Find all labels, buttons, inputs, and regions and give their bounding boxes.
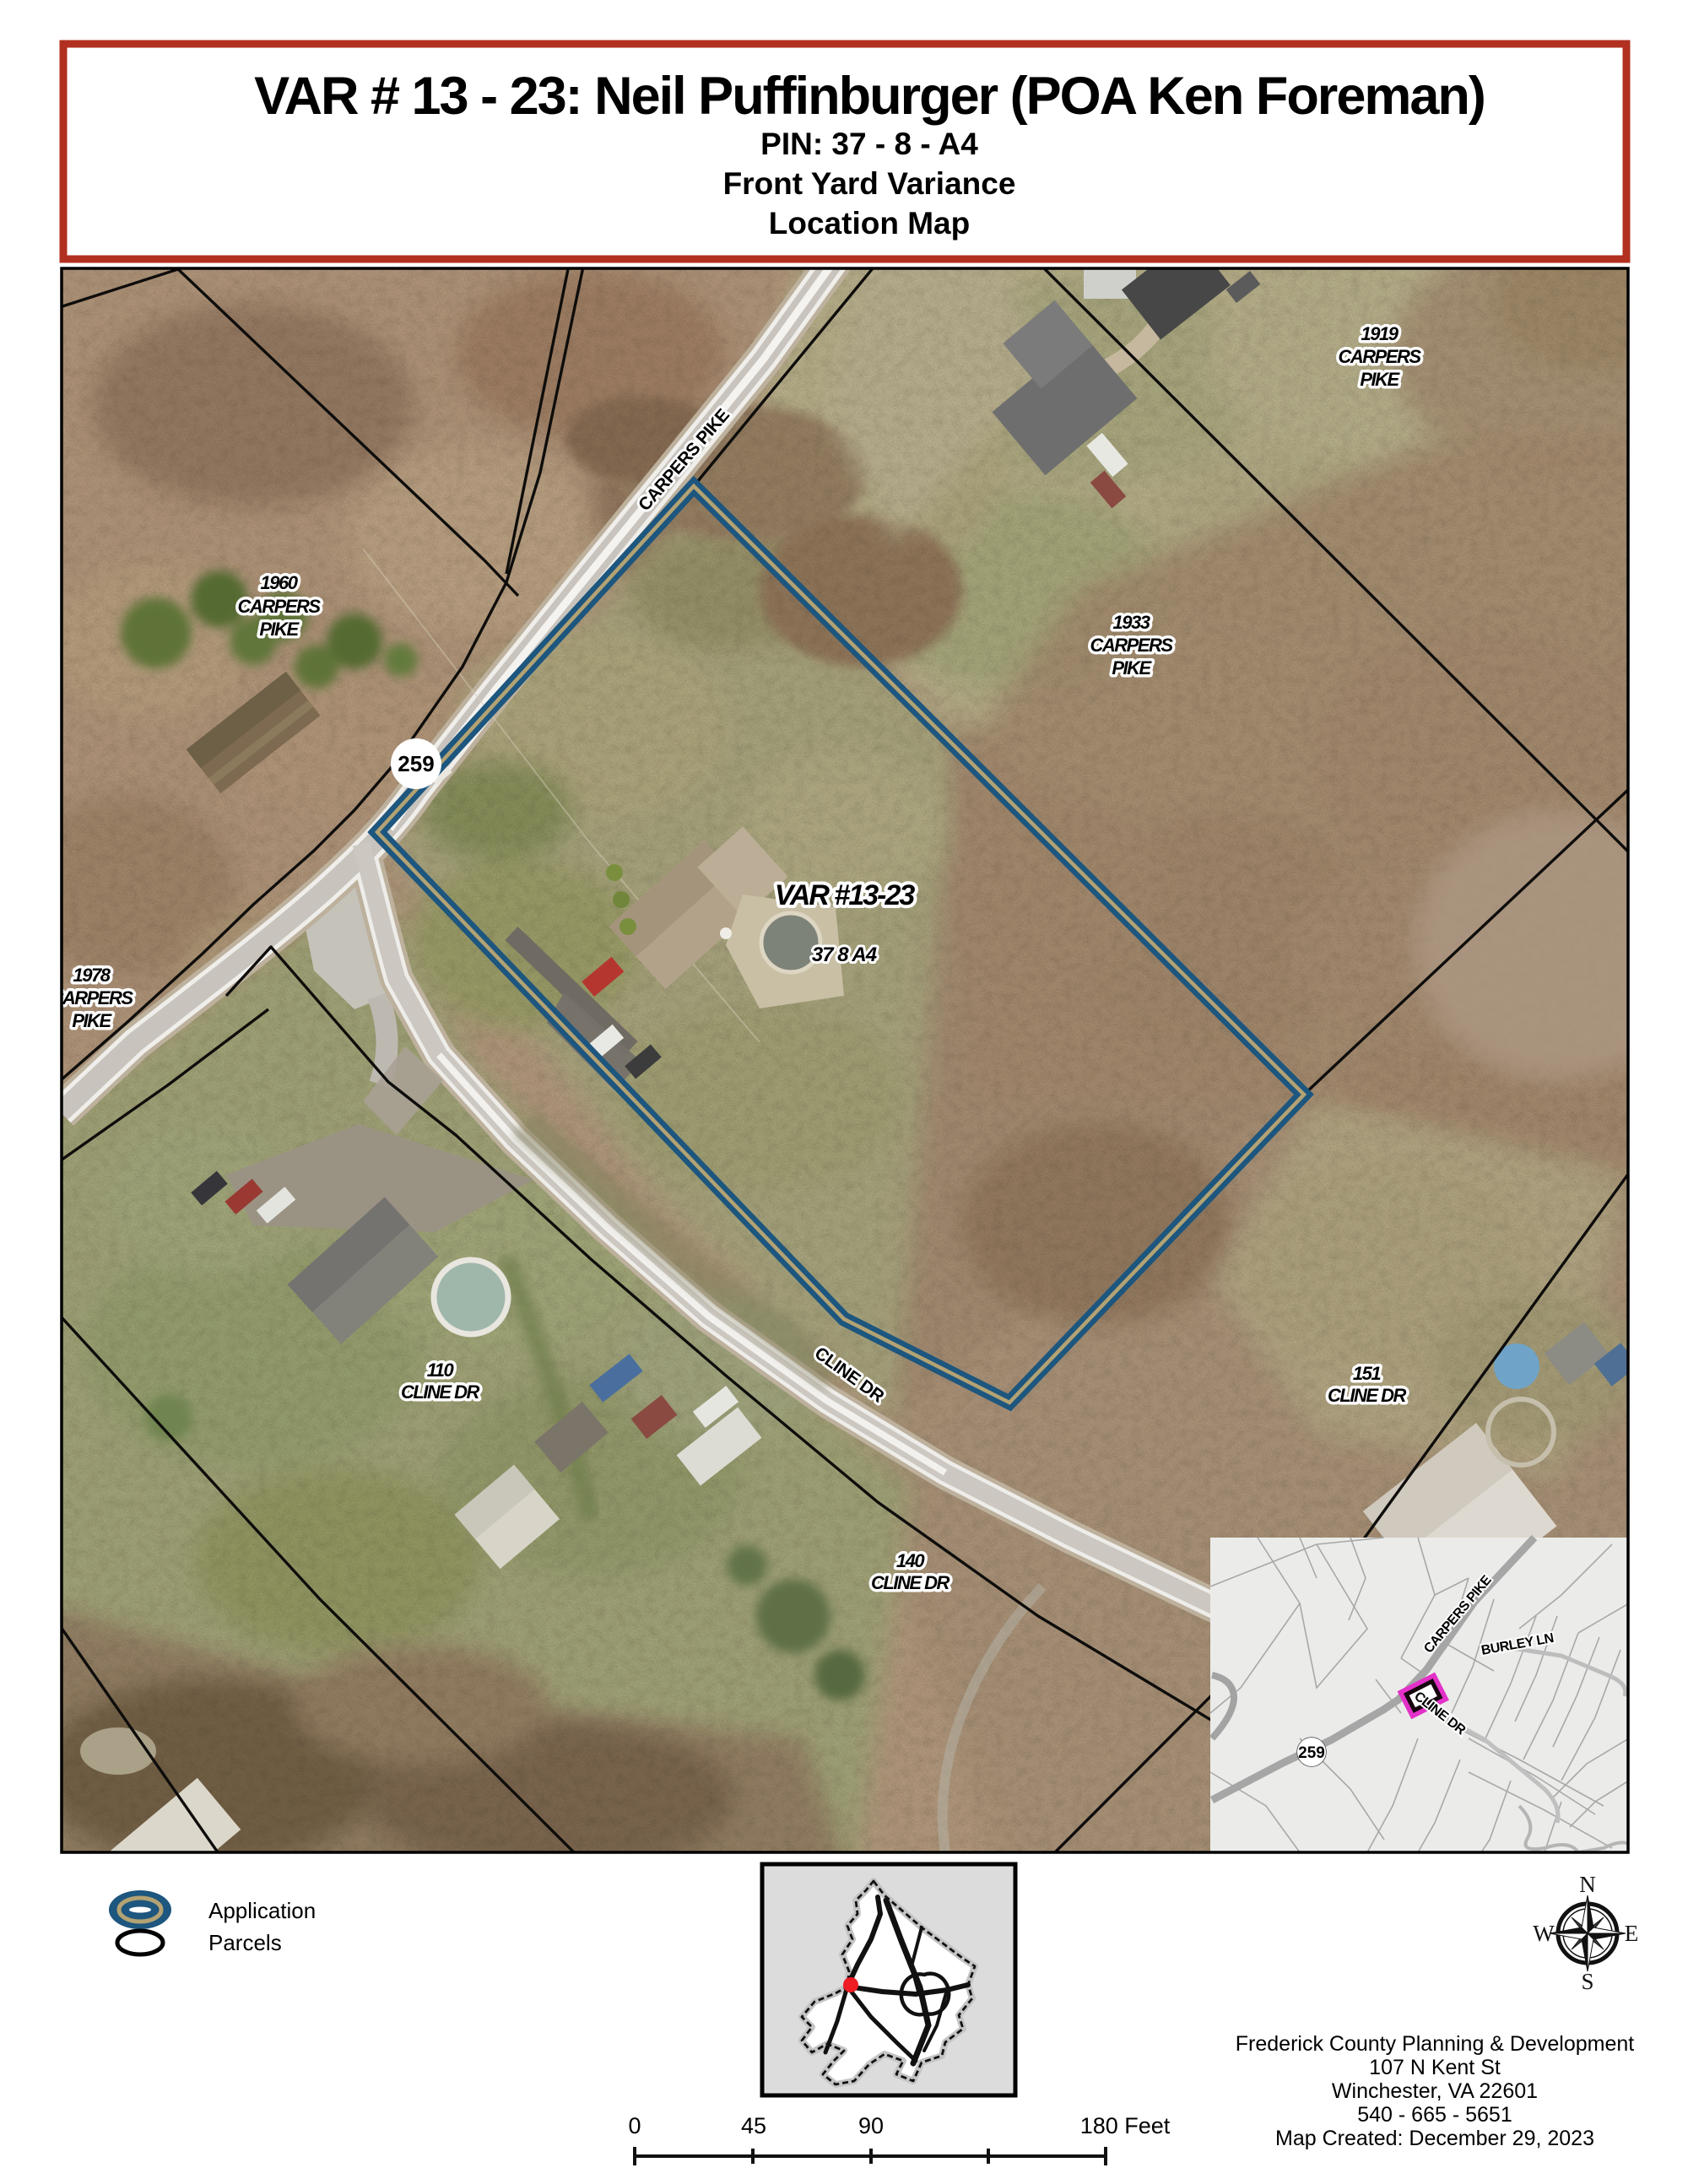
svg-text:W: W	[1533, 1921, 1555, 1946]
svg-text:CARPERS: CARPERS	[1338, 346, 1421, 367]
svg-text:140: 140	[896, 1550, 925, 1571]
svg-text:151: 151	[1353, 1363, 1381, 1384]
svg-text:0: 0	[628, 2113, 641, 2138]
svg-text:Front Yard Variance: Front Yard Variance	[723, 166, 1016, 201]
svg-text:Location Map: Location Map	[769, 206, 970, 241]
svg-text:N: N	[1579, 1872, 1596, 1897]
svg-text:PIN: 37 - 8 - A4: PIN: 37 - 8 - A4	[760, 127, 978, 161]
svg-text:CARPERS: CARPERS	[237, 596, 321, 617]
svg-text:Frederick County Planning & De: Frederick County Planning & Development	[1236, 2032, 1635, 2056]
svg-text:E: E	[1625, 1921, 1639, 1946]
svg-text:PIKE: PIKE	[1112, 657, 1152, 678]
svg-text:PIKE: PIKE	[259, 619, 300, 640]
svg-text:PIKE: PIKE	[72, 1010, 112, 1031]
svg-text:Parcels: Parcels	[208, 1930, 282, 1955]
svg-text:1978: 1978	[73, 965, 111, 986]
svg-text:1960: 1960	[261, 572, 299, 593]
svg-text:VAR #13-23: VAR #13-23	[775, 879, 916, 911]
svg-text:180 Feet: 180 Feet	[1080, 2113, 1171, 2138]
svg-text:S: S	[1581, 1969, 1593, 1994]
svg-text:Application: Application	[208, 1898, 316, 1923]
svg-text:110: 110	[427, 1360, 455, 1381]
svg-text:VAR # 13 - 23: Neil Puffinburg: VAR # 13 - 23: Neil Puffinburger (POA Ke…	[254, 67, 1485, 126]
svg-text:540 - 665 - 5651: 540 - 665 - 5651	[1357, 2103, 1512, 2127]
svg-text:37 8 A4: 37 8 A4	[812, 943, 877, 966]
svg-text:CLINE DR: CLINE DR	[401, 1381, 480, 1403]
svg-text:259: 259	[1298, 1744, 1325, 1762]
svg-text:Map Created: December 29, 2023: Map Created: December 29, 2023	[1275, 2127, 1594, 2150]
svg-text:90: 90	[858, 2113, 884, 2138]
svg-text:259: 259	[398, 751, 434, 776]
svg-text:CARPERS: CARPERS	[1090, 635, 1173, 656]
svg-text:45: 45	[741, 2113, 766, 2138]
svg-text:107 N Kent St: 107 N Kent St	[1369, 2056, 1501, 2079]
svg-text:1919: 1919	[1361, 323, 1399, 344]
svg-text:PIKE: PIKE	[1360, 369, 1400, 390]
svg-text:1933: 1933	[1113, 612, 1150, 633]
svg-text:CLINE DR: CLINE DR	[1328, 1385, 1407, 1406]
svg-text:Winchester, VA 22601: Winchester, VA 22601	[1332, 2079, 1538, 2103]
svg-text:CLINE DR: CLINE DR	[871, 1572, 950, 1593]
